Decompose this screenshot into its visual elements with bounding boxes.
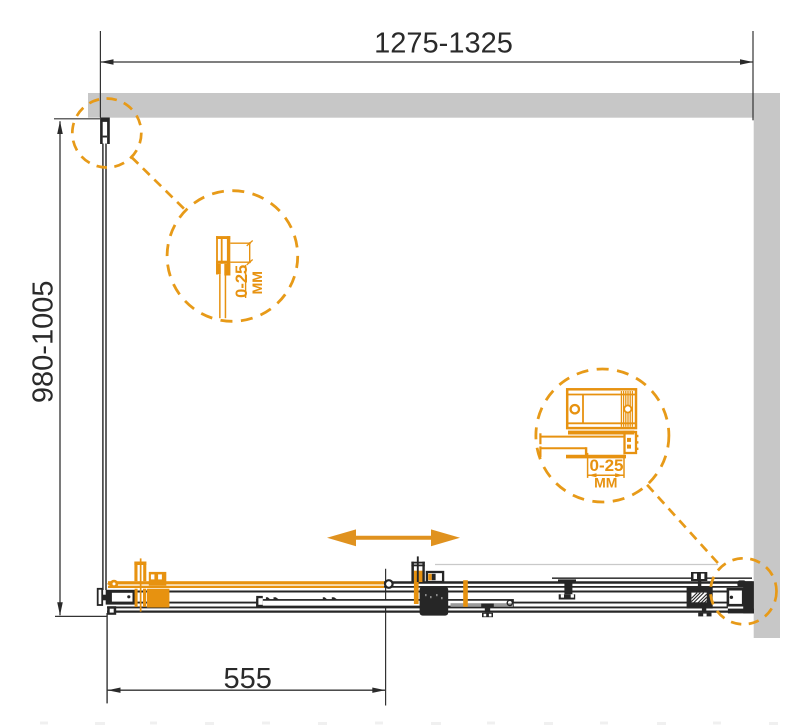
svg-text:0-25: 0-25: [589, 456, 623, 475]
svg-text:555: 555: [224, 663, 272, 695]
svg-text:ММ: ММ: [594, 475, 617, 491]
svg-text:980-1005: 980-1005: [27, 281, 59, 404]
svg-text:ММ: ММ: [249, 271, 265, 294]
svg-text:1275-1325: 1275-1325: [374, 27, 513, 59]
